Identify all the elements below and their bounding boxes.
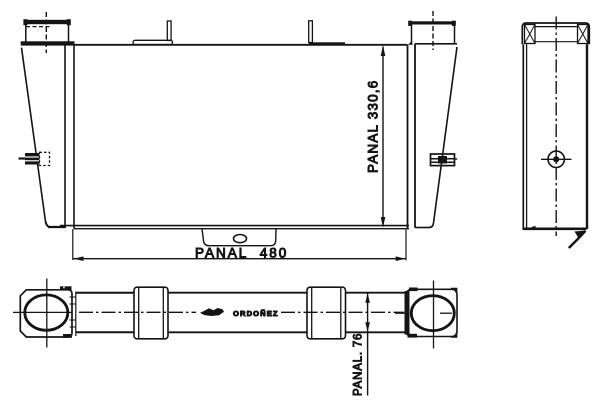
svg-text:PANAL 330,6: PANAL 330,6 <box>366 79 381 173</box>
svg-text:ORDOÑEZ: ORDOÑEZ <box>233 309 279 318</box>
svg-text:PANAL 480: PANAL 480 <box>195 246 288 261</box>
svg-text:PANAL. 76: PANAL. 76 <box>353 333 365 396</box>
